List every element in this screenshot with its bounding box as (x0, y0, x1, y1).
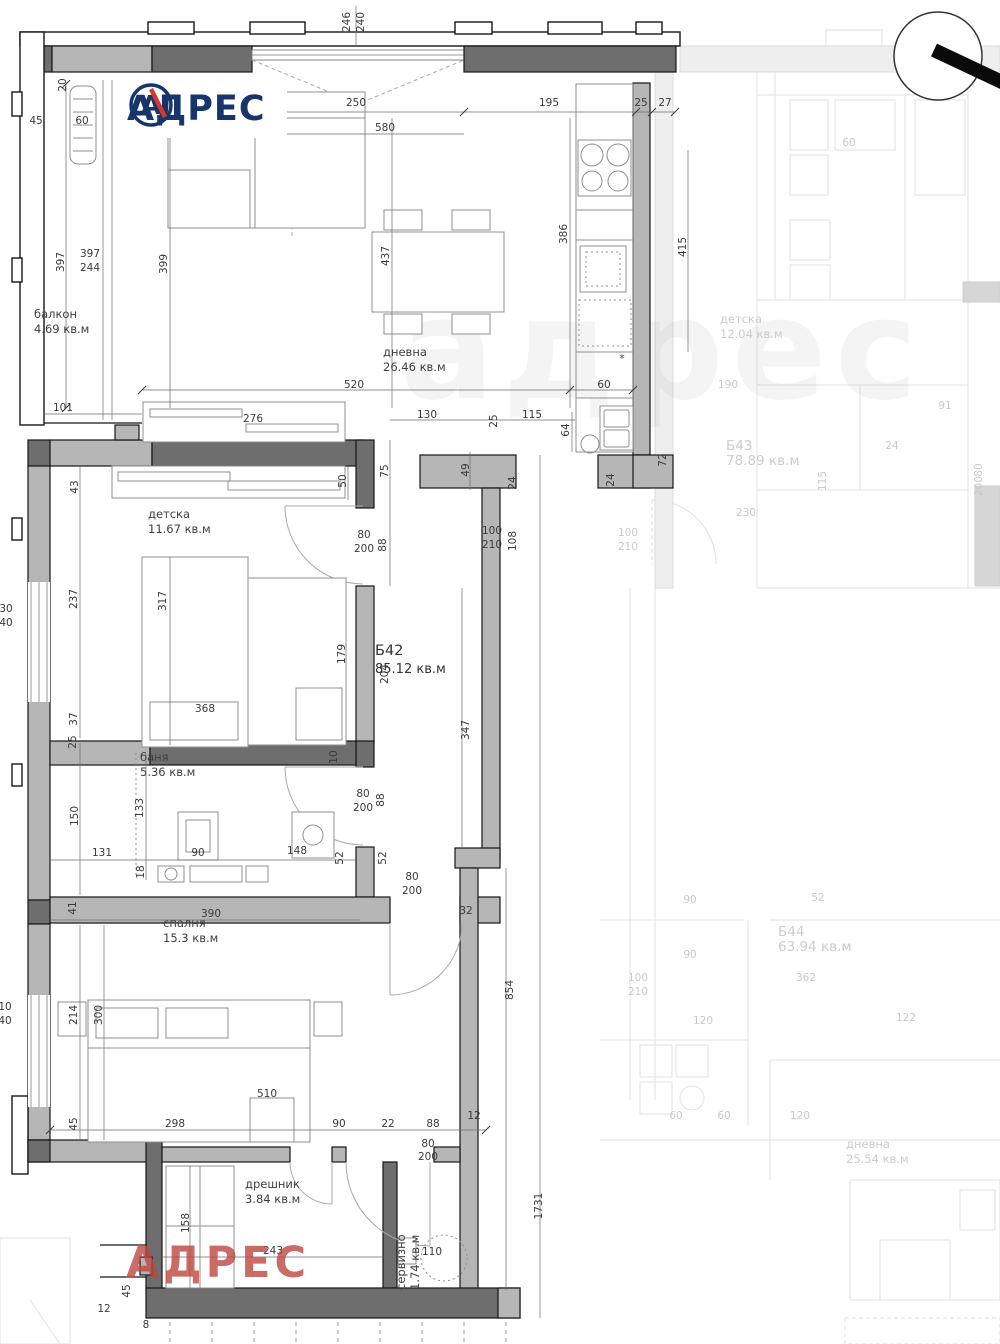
dimension-label: 244 (80, 262, 100, 274)
dimension-label: 100 (618, 527, 638, 539)
dimension-label: 90 (683, 894, 696, 906)
dimension-label: 200 (353, 802, 373, 814)
dimension-label: 88 (375, 793, 387, 806)
room-area-label: 25.54 кв.м (846, 1152, 909, 1166)
dimension-label: 80 (357, 529, 370, 541)
dimension-label: 210 (628, 986, 648, 998)
dimension-label: 580 (375, 122, 395, 134)
dimension-label: 347 (460, 720, 472, 740)
dimension-label: 120 (693, 1015, 713, 1027)
dimension-label: 108 (507, 531, 519, 551)
dimension-label: 52 (377, 851, 389, 864)
dimension-label: 298 (165, 1118, 185, 1130)
dimension-label: 122 (896, 1012, 916, 1024)
dimension-label: 246 (341, 12, 353, 32)
room-area-label: 11.67 кв.м (148, 522, 211, 536)
dimension-label: 210 (482, 539, 502, 551)
chair (384, 210, 422, 230)
dimension-label: 100 (482, 525, 502, 537)
dimension-label: 510 (257, 1088, 277, 1100)
dimension-label: 45 (29, 115, 42, 127)
room-name-label: Б44 (778, 924, 804, 940)
dimension-label: 80 (421, 1138, 434, 1150)
dimension-label: 45 (68, 1117, 80, 1130)
dimension-label: 179 (336, 644, 348, 664)
dimension-label: 80 (356, 788, 369, 800)
room-name-label: детска (720, 312, 762, 326)
dimension-label: 200 (973, 476, 985, 496)
dimension-label: 437 (380, 246, 392, 266)
dimension-label: 90 (191, 847, 204, 859)
dimension-label: 195 (539, 97, 559, 109)
dimension-label: 158 (180, 1213, 192, 1233)
dimension-label: 115 (522, 409, 542, 421)
dimension-label: 90 (332, 1118, 345, 1130)
room-name-label: детска (148, 507, 190, 521)
room-area-label: 15.3 кв.м (163, 931, 218, 945)
dimension-label: 90 (683, 949, 696, 961)
dimension-label: 317 (157, 591, 169, 611)
dimension-label: 20 (57, 78, 69, 91)
room-area-label: 4.69 кв.м (34, 322, 89, 336)
dimension-label: 110 (422, 1246, 442, 1258)
dimension-label: 250 (346, 97, 366, 109)
room-area-label: 5.36 кв.м (140, 765, 195, 779)
dimension-label: 43 (69, 480, 81, 493)
dimension-label: 190 (718, 379, 738, 391)
adres-red-watermark: АДРЕС (126, 1238, 310, 1288)
dimension-label: 52 (811, 892, 824, 904)
dimension-label: 230 (736, 507, 756, 519)
room-name-label: дрешник (245, 1177, 300, 1191)
dimension-label: 50 (337, 474, 349, 487)
dimension-label: 60 (669, 1110, 682, 1122)
dimension-label: 88 (377, 538, 389, 551)
dimension-label: 8 (143, 1319, 150, 1331)
dimension-label: 60 (597, 379, 610, 391)
room-name-label: баня (140, 750, 169, 764)
room-name-label: сервизно (394, 1234, 408, 1290)
dimension-label: 115 (817, 471, 829, 491)
dimension-label: 25 (67, 735, 79, 748)
dimension-label: 200 (354, 543, 374, 555)
dimension-label: 10 (0, 1001, 12, 1013)
dimension-label: 397 (80, 248, 100, 260)
room-name-label: спалня (163, 916, 206, 930)
chair (452, 210, 490, 230)
room-area-label: 1.74 кв.м (408, 1235, 422, 1290)
dimension-label: 60 (75, 115, 88, 127)
dimension-label: 368 (195, 703, 215, 715)
chair (452, 314, 490, 334)
kids-bed (142, 557, 248, 747)
kitchen-sink (600, 406, 633, 450)
dimension-label: 24 (507, 476, 519, 490)
room-name-label: дневна (383, 345, 427, 359)
dimension-label: 520 (344, 379, 364, 391)
dimension-label: 27 (658, 97, 671, 109)
room-name-label: балкон (34, 307, 77, 321)
dimension-label: 101 (53, 402, 73, 414)
dimension-label: 130 (417, 409, 437, 421)
dimension-label: 64 (560, 423, 572, 437)
dimension-label: * (619, 353, 624, 365)
dimension-label: 131 (92, 847, 112, 859)
dimension-label: 41 (67, 901, 79, 914)
dimension-label: 276 (243, 413, 263, 425)
dimension-label: 40 (0, 617, 13, 629)
dimension-label: 415 (677, 237, 689, 257)
dimension-label: 150 (69, 806, 81, 826)
dimension-label: 200 (418, 1151, 438, 1163)
room-area-label: 12.04 кв.м (720, 327, 783, 341)
room-name-label: дневна (846, 1137, 890, 1151)
dimension-label: 24 (885, 440, 899, 452)
dimension-label: 32 (459, 905, 472, 917)
dimension-label: 72 (657, 453, 669, 466)
dimension-label: 300 (93, 1005, 105, 1025)
dimension-label: 214 (68, 1005, 80, 1025)
kids-room-door-arc (285, 506, 363, 584)
kids-desk (248, 578, 346, 745)
dimension-label: 237 (68, 589, 80, 609)
dimension-label: 18 (135, 865, 147, 878)
dimension-label: 25 (634, 97, 647, 109)
dimension-label: 37 (68, 712, 80, 725)
dimension-label: 25 (488, 414, 500, 427)
dimension-label: 10 (328, 750, 340, 763)
dimension-label: 40 (0, 1015, 12, 1027)
room-area-label: 78.89 кв.м (726, 453, 800, 469)
dimension-label: 210 (618, 541, 638, 553)
adres-logo-icon: А (127, 81, 175, 129)
dimension-label: 1731 (533, 1193, 545, 1220)
chair (384, 314, 422, 334)
nightstand (314, 1002, 342, 1036)
dimension-label: 80 (973, 463, 985, 476)
room-area-label: 26.46 кв.м (383, 360, 446, 374)
dimension-label: 88 (426, 1118, 439, 1130)
dimension-label: 49 (460, 463, 472, 476)
floorplan-canvas: адрес (0, 0, 1000, 1344)
room-name-label: Б43 (726, 438, 752, 454)
dimension-label: 100 (628, 972, 648, 984)
dimension-label: 240 (355, 12, 367, 32)
unit-id-label: Б42 (375, 643, 403, 659)
dimension-label: 60 (842, 137, 855, 149)
dimension-label: 60 (717, 1110, 730, 1122)
dimension-label: 24 (605, 473, 617, 487)
dimension-label: 52 (334, 851, 346, 864)
unit-area-label: 85.12 кв.м (375, 662, 446, 677)
dimension-label: 120 (790, 1110, 810, 1122)
floorplan-drawing: адрес (0, 0, 1000, 1344)
dimension-label: 91 (938, 400, 951, 412)
dimension-label: 399 (158, 254, 170, 274)
dimension-label: 200 (402, 885, 422, 897)
furniture (58, 84, 633, 1288)
dimension-label: 75 (379, 464, 391, 477)
room-area-label: 63.94 кв.м (778, 939, 852, 955)
dimension-label: 386 (558, 224, 570, 244)
oven (580, 246, 626, 292)
stove (578, 140, 631, 196)
dimension-label: 12 (467, 1110, 480, 1122)
room-area-label: 3.84 кв.м (245, 1192, 300, 1206)
dimension-label: 397 (55, 252, 67, 272)
dimension-label: 133 (134, 798, 146, 818)
dresser (250, 1098, 294, 1142)
dimension-label: 362 (796, 972, 816, 984)
dimension-label: 12 (97, 1303, 110, 1315)
dimension-label: 80 (405, 871, 418, 883)
bedroom-door-arc (390, 923, 462, 995)
dimension-label: 22 (381, 1118, 394, 1130)
adres-logo: А АДРЕС (127, 81, 287, 138)
dimension-label: 148 (287, 845, 307, 857)
dimension-label: 854 (504, 980, 516, 1000)
dimension-label: 30 (0, 603, 13, 615)
